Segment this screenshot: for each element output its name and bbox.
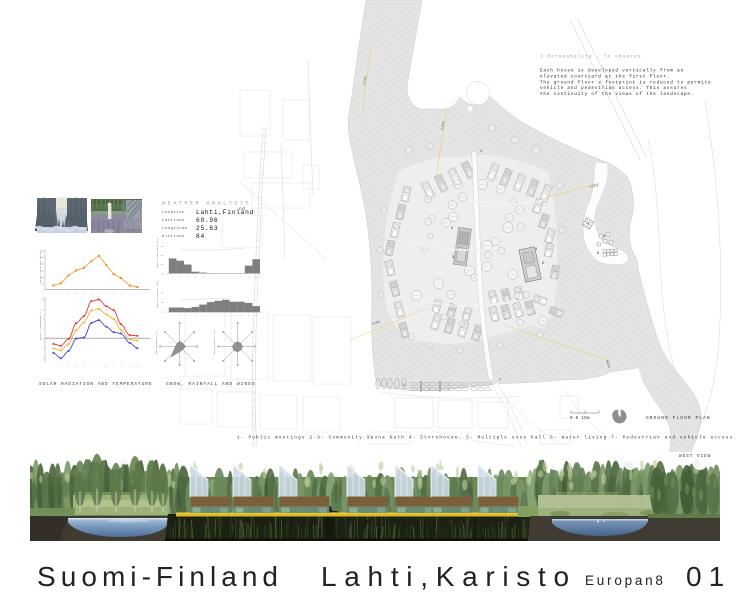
svg-text:MONTHLY TEMPERATURE (C): MONTHLY TEMPERATURE (C) xyxy=(39,310,42,340)
svg-text:Location: Location xyxy=(162,210,185,215)
svg-text:Europan8: Europan8 xyxy=(585,573,666,588)
svg-text:O: O xyxy=(240,277,241,279)
svg-text:1: 1 xyxy=(403,384,405,388)
svg-text:N: N xyxy=(129,366,130,368)
svg-text:A: A xyxy=(76,365,78,368)
svg-text:J: J xyxy=(91,293,92,295)
svg-text:SNOW, RAINFALL AND WINDS: SNOW, RAINFALL AND WINDS xyxy=(166,381,256,387)
svg-text:A: A xyxy=(195,276,197,279)
svg-text:20: 20 xyxy=(161,301,164,304)
svg-text:84: 84 xyxy=(196,233,205,240)
svg-text:J: J xyxy=(172,277,173,279)
svg-text:Lahti,Finland: Lahti,Finland xyxy=(196,209,254,216)
svg-text:7: 7 xyxy=(499,379,501,383)
svg-text:3: 3 xyxy=(452,256,454,260)
svg-text:WIND INTENSITY (m/s): WIND INTENSITY (m/s) xyxy=(213,328,216,354)
svg-text:60.96: 60.96 xyxy=(196,217,218,224)
svg-text:4: 4 xyxy=(603,235,605,239)
svg-text:J: J xyxy=(210,315,211,317)
svg-text:Altitude: Altitude xyxy=(162,234,185,239)
svg-text:40: 40 xyxy=(161,292,164,295)
svg-text:elevated courtyard at the firs: elevated courtyard at the first floor. xyxy=(540,74,670,79)
svg-text:-4: -4 xyxy=(41,347,44,350)
svg-text:J: J xyxy=(53,293,54,295)
svg-text:A: A xyxy=(195,314,197,317)
svg-text:Each house is developed vertic: Each house is developed vertically from … xyxy=(540,69,684,74)
svg-text:S: S xyxy=(233,315,234,317)
svg-text:2: 2 xyxy=(451,227,453,231)
svg-text:M: M xyxy=(202,315,203,317)
svg-text:0: 0 xyxy=(162,310,164,313)
svg-text:Lahti,Karisto: Lahti,Karisto xyxy=(321,561,577,592)
svg-text:MONTHLY SNOW DEPTH (cm): MONTHLY SNOW DEPTH (cm) xyxy=(156,238,159,268)
svg-text:WEST VIEW: WEST VIEW xyxy=(679,454,711,459)
svg-text:M: M xyxy=(83,293,84,295)
svg-text:D: D xyxy=(256,277,257,279)
svg-text:SOLAR RADIATION AND TEMPERATUR: SOLAR RADIATION AND TEMPERATURE xyxy=(39,381,153,387)
svg-text:M: M xyxy=(68,293,69,295)
svg-text:1- Public meetings 2-3- Commu: 1- Public meetings 2-3- Community Sauna … xyxy=(237,436,737,441)
svg-text:20: 20 xyxy=(161,254,164,257)
svg-text:1: 1 xyxy=(480,150,482,154)
svg-text:F: F xyxy=(60,293,61,295)
svg-text:30: 30 xyxy=(161,245,164,248)
svg-text:0 5 15m: 0 5 15m xyxy=(570,417,590,421)
svg-text:J: J xyxy=(172,315,173,317)
svg-text:01: 01 xyxy=(686,561,731,592)
svg-text:0: 0 xyxy=(162,272,164,275)
svg-text:S: S xyxy=(113,293,114,295)
svg-text:A: A xyxy=(106,292,108,295)
svg-text:J: J xyxy=(98,293,99,295)
svg-text:A: A xyxy=(106,365,108,368)
svg-text:25.63: 25.63 xyxy=(196,225,218,232)
svg-text:MONTHLY SOLAR RAD (MJ/m2): MONTHLY SOLAR RAD (MJ/m2) xyxy=(39,250,42,283)
svg-text:J: J xyxy=(218,277,219,279)
svg-text:M: M xyxy=(187,315,188,317)
svg-text:WEATHER ANALYSIS: WEATHER ANALYSIS xyxy=(162,200,251,207)
svg-text:D: D xyxy=(137,293,138,295)
svg-text:GROUND FLOOR PLAN: GROUND FLOOR PLAN xyxy=(646,415,711,421)
svg-text:S: S xyxy=(113,366,114,368)
svg-text:F: F xyxy=(180,277,181,279)
svg-text:D: D xyxy=(256,315,257,317)
svg-text:M: M xyxy=(202,277,203,279)
svg-text:F: F xyxy=(60,366,61,368)
svg-text:J: J xyxy=(98,366,99,368)
svg-text:Latitude: Latitude xyxy=(162,218,185,223)
svg-text:Suomi-Finland: Suomi-Finland xyxy=(37,561,283,592)
svg-text:0: 0 xyxy=(43,337,45,340)
svg-text:vehicle and pedestrian access.: vehicle and pedestrian access. This assu… xyxy=(540,86,687,91)
svg-text:S: S xyxy=(233,277,234,279)
svg-text:N: N xyxy=(129,293,130,295)
svg-text:A: A xyxy=(225,314,227,317)
svg-text:O: O xyxy=(240,315,241,317)
svg-text:M: M xyxy=(187,277,188,279)
svg-text:A: A xyxy=(225,276,227,279)
svg-text:M: M xyxy=(68,366,69,368)
svg-text:O: O xyxy=(120,293,121,295)
svg-text:A: A xyxy=(76,292,78,295)
svg-text:3 Permeability - To observe.: 3 Permeability - To observe. xyxy=(540,54,645,60)
svg-text:WIND FREQUENCY (%): WIND FREQUENCY (%) xyxy=(155,331,158,354)
svg-text:5: 5 xyxy=(542,262,544,266)
svg-text:the continuity of the views of: the continuity of the views of the lands… xyxy=(540,92,694,97)
svg-text:O: O xyxy=(120,366,121,368)
svg-text:J: J xyxy=(210,277,211,279)
svg-text:J: J xyxy=(218,315,219,317)
svg-text:J: J xyxy=(53,366,54,368)
svg-text:The ground floor´s footprint i: The ground floor´s footprint is reduced … xyxy=(540,80,711,85)
svg-text:16: 16 xyxy=(41,298,44,301)
svg-text:MONTHLY RAINFALL (mm): MONTHLY RAINFALL (mm) xyxy=(156,281,159,308)
svg-text:4: 4 xyxy=(535,248,537,252)
svg-text:8: 8 xyxy=(43,318,45,321)
svg-text:4: 4 xyxy=(43,327,45,330)
svg-text:Longitude: Longitude xyxy=(162,226,188,231)
svg-text:0: 0 xyxy=(43,289,45,292)
svg-text:F: F xyxy=(180,315,181,317)
svg-text:10: 10 xyxy=(161,263,164,266)
svg-text:-8: -8 xyxy=(41,357,44,360)
svg-text:M: M xyxy=(83,366,84,368)
svg-text:6: 6 xyxy=(597,252,599,256)
svg-text:J: J xyxy=(91,366,92,368)
svg-text:N: N xyxy=(248,315,249,317)
svg-text:D: D xyxy=(137,366,138,368)
svg-text:N: N xyxy=(248,277,249,279)
